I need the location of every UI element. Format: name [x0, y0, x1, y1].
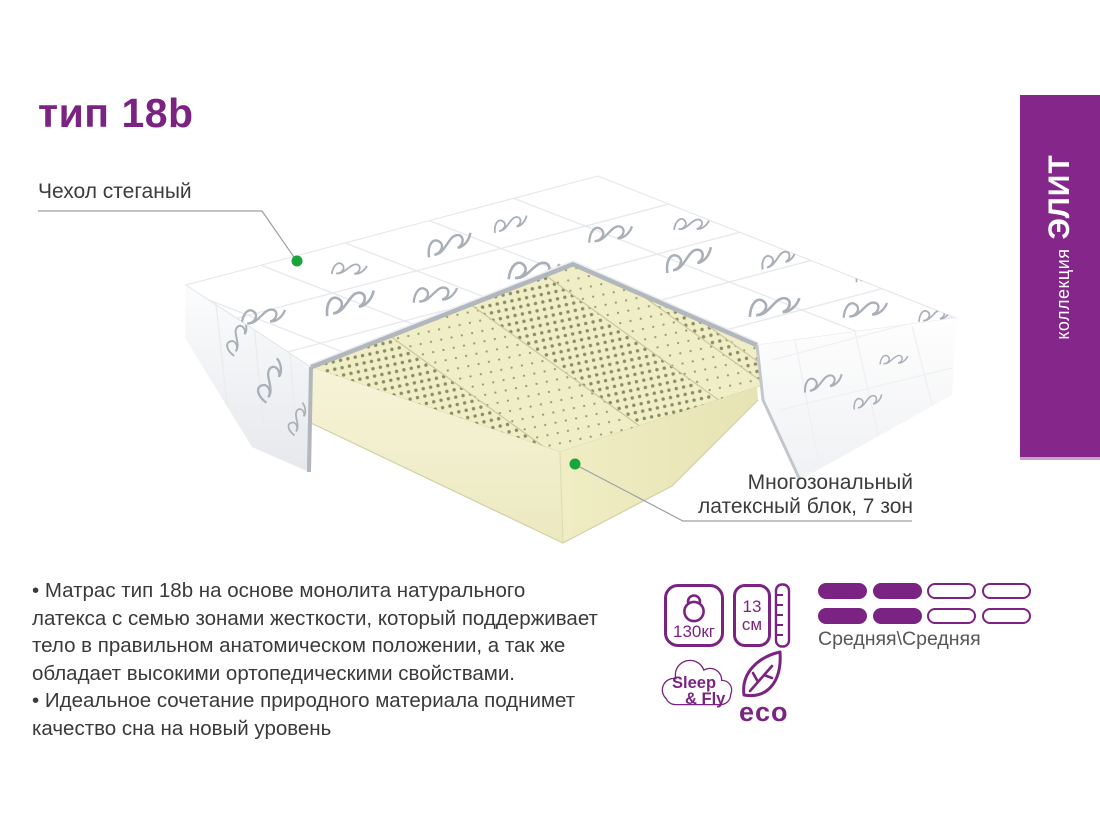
- ruler-icon-wrap: [774, 583, 792, 653]
- page-title: тип 18b: [38, 90, 194, 137]
- firmness-bar: [927, 608, 976, 624]
- product-description: • Матрас тип 18b на основе монолита нату…: [32, 577, 598, 742]
- collection-banner-text: коллекцияЭЛИТ: [1043, 154, 1077, 339]
- description-line: тело в правильном анатомическом положени…: [32, 632, 598, 660]
- cover-flap-piping: [309, 367, 311, 472]
- callout-latex-label: Многозональный латексный блок, 7 зон: [698, 471, 913, 519]
- firmness-bar: [818, 608, 867, 624]
- max-weight-badge: 130кг: [664, 584, 724, 647]
- height-value: 13: [743, 598, 762, 616]
- marker-dot-cover: [292, 256, 303, 267]
- collection-name: ЭЛИТ: [1043, 154, 1076, 239]
- collection-label: коллекция: [1053, 249, 1073, 340]
- description-line: качество сна на новый уровень: [32, 715, 598, 743]
- description-line: латекса с семью зонами жесткости, которы…: [32, 605, 598, 633]
- firmness-bar: [982, 583, 1031, 599]
- leaf-icon: [744, 652, 781, 696]
- description-line: • Матрас тип 18b на основе монолита нату…: [32, 577, 598, 605]
- callout-latex-line2: латексный блок, 7 зон: [698, 495, 913, 519]
- max-weight-value: 130кг: [673, 623, 715, 641]
- product-page: тип 18b Чехол стеганый Многозональный ла…: [0, 0, 1100, 814]
- height-unit: см: [742, 616, 762, 634]
- firmness-label: Средняя\Средняя: [818, 628, 981, 651]
- firmness-bar: [927, 583, 976, 599]
- callout-latex-line1: Многозональный: [698, 471, 913, 495]
- kettlebell-icon: [680, 593, 708, 623]
- firmness-bar: [873, 583, 922, 599]
- leader-line-cover: [38, 211, 296, 260]
- collection-banner: коллекцияЭЛИТ: [1020, 95, 1100, 460]
- firmness-bar: [873, 608, 922, 624]
- firmness-bar: [818, 583, 867, 599]
- description-line: обладает высокими ортопедическими свойст…: [32, 660, 598, 688]
- eco-logo: eco: [735, 648, 791, 728]
- firmness-scale: [818, 583, 1031, 624]
- height-badge: 13 см: [733, 584, 771, 647]
- eco-label: eco: [739, 697, 789, 727]
- firmness-bar: [982, 608, 1031, 624]
- sleep-fly-logo: Sleep & Fly: [659, 656, 739, 712]
- ruler-icon: [774, 583, 792, 648]
- callout-cover-label: Чехол стеганый: [38, 180, 192, 204]
- brand-name-line2: & Fly: [685, 690, 726, 708]
- description-line: • Идеальное сочетание природного материа…: [32, 687, 598, 715]
- marker-dot-latex: [570, 459, 581, 470]
